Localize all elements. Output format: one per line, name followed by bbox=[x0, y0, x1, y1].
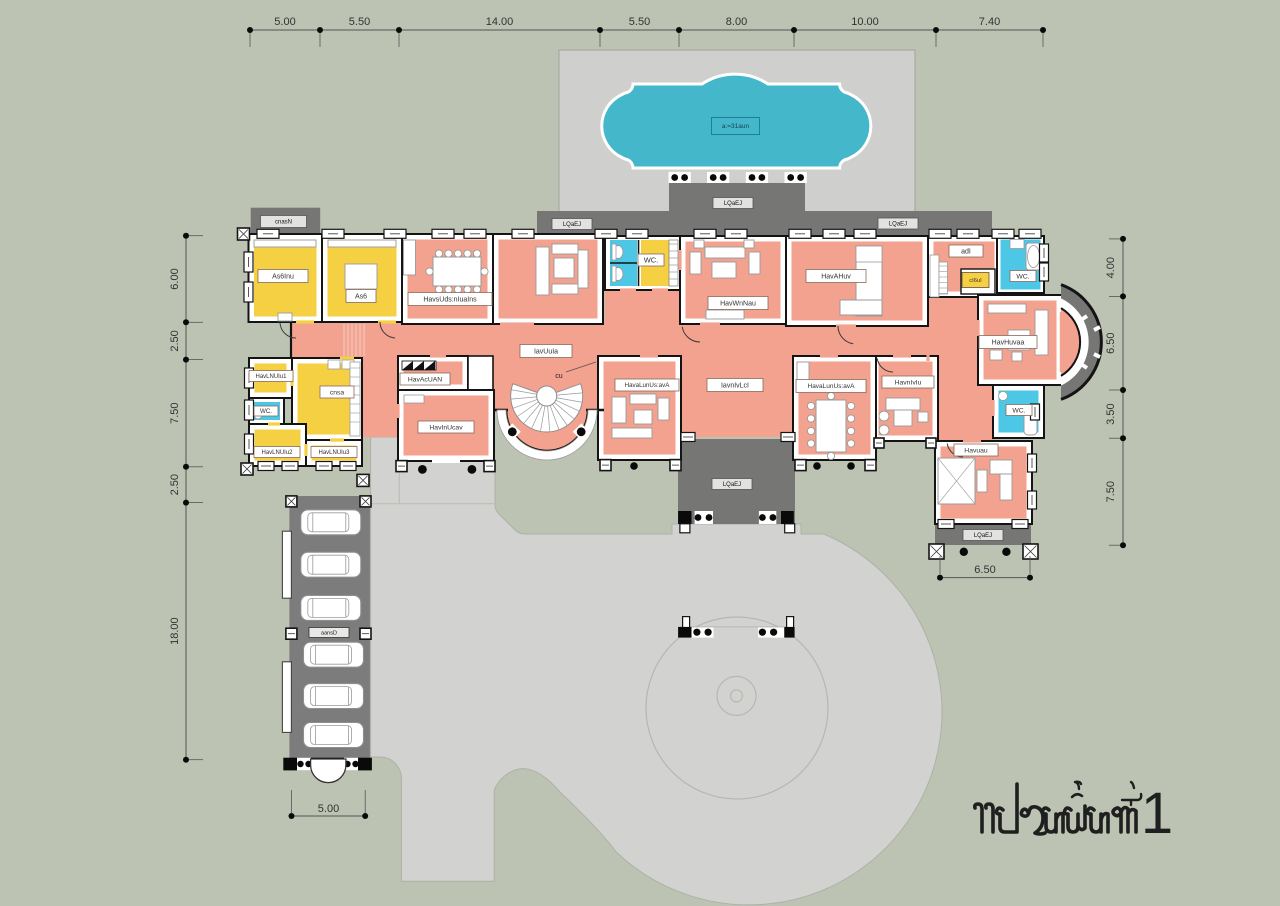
svg-text:18.00: 18.00 bbox=[169, 617, 181, 645]
svg-text:2.50: 2.50 bbox=[169, 330, 181, 351]
svg-text:HavAHuv: HavAHuv bbox=[821, 273, 851, 280]
svg-text:8.00: 8.00 bbox=[726, 16, 747, 28]
svg-text:As6: As6 bbox=[355, 293, 367, 300]
svg-text:WC.: WC. bbox=[1016, 273, 1029, 280]
svg-text:WC.: WC. bbox=[260, 408, 272, 415]
svg-text:HavaLunUs:avA: HavaLunUs:avA bbox=[625, 382, 671, 389]
svg-text:HavLNUIu3: HavLNUIu3 bbox=[318, 450, 350, 456]
svg-text:5.00: 5.00 bbox=[274, 16, 295, 28]
svg-text:6.50: 6.50 bbox=[1105, 332, 1117, 353]
svg-text:HavsUds:nIuaIns: HavsUds:nIuaIns bbox=[423, 296, 477, 303]
svg-text:cu: cu bbox=[555, 373, 563, 380]
svg-text:7.50: 7.50 bbox=[1105, 481, 1117, 502]
svg-text:a:=31aun: a:=31aun bbox=[722, 123, 750, 130]
svg-text:WC.: WC. bbox=[1012, 407, 1025, 414]
svg-text:3.50: 3.50 bbox=[1105, 403, 1117, 424]
svg-text:HavWnNau: HavWnNau bbox=[720, 300, 756, 307]
svg-text:5.00: 5.00 bbox=[318, 803, 339, 815]
svg-text:HavInUcav: HavInUcav bbox=[429, 424, 463, 431]
svg-text:7.50: 7.50 bbox=[169, 402, 181, 423]
svg-text:Havuau: Havuau bbox=[964, 447, 988, 454]
svg-text:1: 1 bbox=[1141, 781, 1173, 846]
svg-text:10.00: 10.00 bbox=[851, 16, 879, 28]
svg-text:6.50: 6.50 bbox=[974, 564, 995, 576]
svg-text:LQaEJ: LQaEJ bbox=[889, 222, 907, 228]
svg-text:HavLNUIu1: HavLNUIu1 bbox=[255, 374, 287, 380]
svg-text:cnsa: cnsa bbox=[330, 389, 345, 396]
svg-text:adI: adI bbox=[961, 248, 971, 255]
svg-text:WC.: WC. bbox=[644, 256, 659, 265]
svg-text:5.50: 5.50 bbox=[629, 16, 650, 28]
svg-text:HavnIvIu: HavnIvIu bbox=[895, 379, 922, 386]
svg-text:HavHuvaa: HavHuvaa bbox=[992, 339, 1025, 346]
svg-text:LQaEJ: LQaEJ bbox=[974, 533, 992, 539]
svg-text:4.00: 4.00 bbox=[1105, 257, 1117, 278]
svg-text:IavUuIa: IavUuIa bbox=[534, 348, 558, 355]
svg-text:HavaLunUs:avA: HavaLunUs:avA bbox=[808, 383, 856, 390]
svg-text:As6Inu: As6Inu bbox=[272, 273, 294, 280]
svg-text:LQaEJ: LQaEJ bbox=[563, 222, 581, 228]
svg-text:HavLNUIu2: HavLNUIu2 bbox=[261, 450, 293, 456]
svg-text:LQaEJ: LQaEJ bbox=[724, 201, 742, 207]
svg-text:2.50: 2.50 bbox=[169, 474, 181, 495]
svg-text:IavnIvLcI: IavnIvLcI bbox=[721, 382, 749, 389]
svg-text:5.50: 5.50 bbox=[349, 16, 370, 28]
svg-text:14.00: 14.00 bbox=[486, 16, 514, 28]
svg-text:LQaEJ: LQaEJ bbox=[723, 482, 741, 488]
svg-text:cnasN: cnasN bbox=[275, 220, 292, 226]
svg-text:cI6uI: cI6uI bbox=[969, 278, 982, 284]
svg-text:HavAcUAN: HavAcUAN bbox=[408, 376, 442, 383]
svg-text:aansD: aansD bbox=[321, 630, 337, 636]
svg-text:7.40: 7.40 bbox=[979, 16, 1000, 28]
svg-text:6.00: 6.00 bbox=[169, 268, 181, 289]
